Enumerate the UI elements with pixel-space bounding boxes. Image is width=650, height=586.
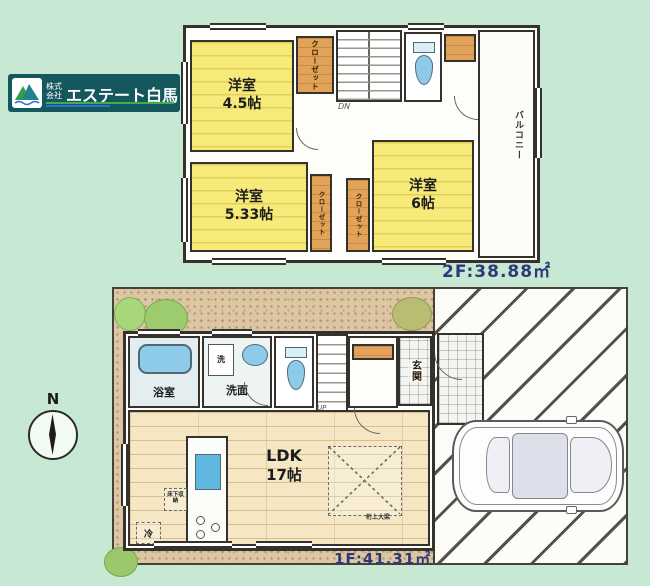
floor-storage-label: 床下収納 xyxy=(165,489,186,504)
tree xyxy=(392,297,432,331)
floor-storage-box: 床下収納 xyxy=(164,488,187,511)
f2-window xyxy=(181,178,188,242)
beam-note: 桁上大梁 xyxy=(366,512,410,521)
f1-window xyxy=(154,541,232,548)
compass-north-label: N xyxy=(24,390,82,409)
f2-stairs xyxy=(336,30,402,102)
washing-machine: 洗 xyxy=(208,344,234,376)
f2-room-533: 洋室 5.33帖 xyxy=(190,162,308,252)
f1-window xyxy=(121,444,128,506)
f2-toilet-tank xyxy=(413,42,435,53)
ldk-size: 17帖 xyxy=(242,466,326,485)
compass-dial xyxy=(28,410,78,460)
stove-burner-icon xyxy=(211,523,220,532)
f1-toilet-tank xyxy=(285,347,307,358)
f2-window xyxy=(181,62,188,124)
f1-window xyxy=(138,329,180,336)
washer-label: 洗 xyxy=(217,355,225,365)
stove-burner-icon xyxy=(196,516,205,525)
f2-room45-door-arc-icon xyxy=(296,128,318,150)
beam-box xyxy=(328,446,402,516)
kitchen-counter xyxy=(186,436,228,546)
logo-mountain-icon xyxy=(12,78,42,108)
f1-toilet xyxy=(274,336,314,408)
f2-toilet xyxy=(404,32,442,102)
f1-bath: 浴室 xyxy=(128,336,200,408)
tree xyxy=(114,297,146,331)
f1-stairs xyxy=(316,334,348,414)
car-roof xyxy=(512,433,568,499)
f2-window xyxy=(535,88,542,158)
f2-toilet-bowl xyxy=(415,55,433,85)
f2-room-45: 洋室 4.5帖 xyxy=(190,40,294,152)
floor1-house: 浴室 洗 洗面 UP 玄関 LDK 17帖 xyxy=(123,331,435,551)
bush xyxy=(104,547,138,577)
shoe-cabinet xyxy=(352,344,394,360)
logo-underline-blue xyxy=(46,105,110,107)
f2-window xyxy=(382,258,446,265)
car-rear-window xyxy=(486,437,510,493)
f1-hall xyxy=(348,336,398,408)
stove-burner-icon xyxy=(196,530,205,539)
f2-room-533-name: 洋室 xyxy=(192,189,306,207)
company-logo: 株式会社 エステート白馬 xyxy=(8,74,180,112)
f1-area-label: 1F:41.31㎡ xyxy=(334,548,464,569)
f2-balcony-label: バルコニー xyxy=(512,110,525,160)
f1-washroom: 洗 洗面 xyxy=(202,336,272,408)
compass: N xyxy=(24,390,82,466)
f2-room-45-size: 4.5帖 xyxy=(192,95,292,113)
ldk-name: LDK xyxy=(242,446,326,466)
f2-window xyxy=(212,258,286,265)
f2-closet-right: クローゼット xyxy=(346,178,370,252)
f1-toilet-bowl xyxy=(287,360,305,390)
fridge-label: 冷 xyxy=(144,527,153,540)
bathtub xyxy=(138,344,192,374)
f2-room-6-name: 洋室 xyxy=(374,178,472,196)
f1-window xyxy=(256,541,312,548)
f2-stairs-dn-label: DN xyxy=(338,102,368,111)
f1-bath-label: 浴室 xyxy=(130,386,198,400)
f2-area-label: 2F:38.88㎡ xyxy=(442,257,592,282)
compass-needle-icon xyxy=(30,412,75,457)
car-mirror-icon xyxy=(566,416,577,424)
floor2-plan: 洋室 4.5帖 クローゼット DN バルコニー 洋室 5.33帖 クローゼット … xyxy=(183,25,540,263)
kitchen-sink xyxy=(195,454,221,490)
f2-closet-right-label: クローゼット xyxy=(353,193,363,238)
f2-room-533-size: 5.33帖 xyxy=(192,206,306,224)
f2-closet-left-label: クローゼット xyxy=(316,191,326,236)
f2-window xyxy=(210,23,266,30)
car-windshield xyxy=(570,437,612,493)
f2-closet-top: クローゼット xyxy=(296,36,334,94)
car-top-view xyxy=(452,420,624,512)
washroom-door-arc-icon xyxy=(244,382,268,406)
f2-room-6: 洋室 6帖 xyxy=(372,140,474,252)
floorplan-page: 株式会社 エステート白馬 洋室 4.5帖 クローゼット DN バルコニー 洋室 xyxy=(0,0,650,586)
f2-cabinet xyxy=(444,34,476,62)
washroom-sink xyxy=(242,344,268,366)
f2-balcony: バルコニー xyxy=(478,30,535,258)
f2-closet-left: クローゼット xyxy=(310,174,332,252)
f2-balcony-door-arc-icon xyxy=(454,96,478,120)
f2-room-45-name: 洋室 xyxy=(192,78,292,96)
company-prefix: 株式会社 xyxy=(46,82,64,100)
f1-entrance: 玄関 xyxy=(398,336,432,406)
f1-window xyxy=(212,329,252,336)
f2-window xyxy=(408,23,444,30)
logo-underline-green xyxy=(46,102,174,104)
f2-room-6-size: 6帖 xyxy=(374,195,472,213)
f2-closet-top-label: クローゼット xyxy=(310,40,321,91)
ldk-label: LDK 17帖 xyxy=(242,446,326,492)
car-mirror-icon xyxy=(566,506,577,514)
f1-entrance-label: 玄関 xyxy=(408,360,423,382)
